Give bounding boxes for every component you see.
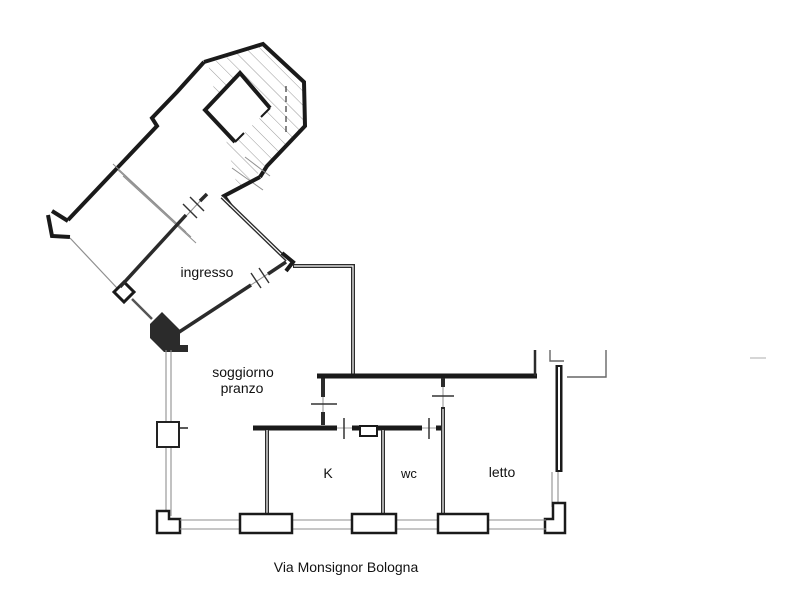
window-pillar <box>438 514 488 533</box>
terrace-edge-line <box>70 238 117 288</box>
label-ingresso: ingresso <box>181 264 234 280</box>
neighbor-outline <box>567 350 606 377</box>
wall-ingresso-to-corridor <box>293 266 353 374</box>
window-wall-bottom <box>180 514 546 533</box>
caption-street-name: Via Monsignor Bologna <box>274 559 419 575</box>
room-soggiorno <box>150 312 337 533</box>
kitchen-north-wall <box>253 418 444 439</box>
window-pillar <box>240 514 292 533</box>
floor-plan-svg: ingresso soggiorno pranzo K wc letto Via… <box>0 0 800 600</box>
floor-plan-canvas: ingresso soggiorno pranzo K wc letto Via… <box>0 0 800 600</box>
window-pillar <box>352 514 396 533</box>
corner-pillar-southwest <box>157 511 180 533</box>
interior-partitions <box>267 378 454 515</box>
radiator-box <box>157 422 179 447</box>
corner-pillar-southeast <box>545 503 565 533</box>
label-kitchen: K <box>323 465 333 481</box>
label-pranzo: pranzo <box>221 380 264 396</box>
door-ticks-ingresso-soggiorno <box>251 268 269 288</box>
label-soggiorno: soggiorno <box>212 364 274 380</box>
door-leaf-rect <box>360 426 377 436</box>
letto-east-wall <box>545 350 766 533</box>
label-wc: wc <box>400 466 417 481</box>
label-letto: letto <box>489 464 516 480</box>
entry-steps <box>113 164 196 243</box>
